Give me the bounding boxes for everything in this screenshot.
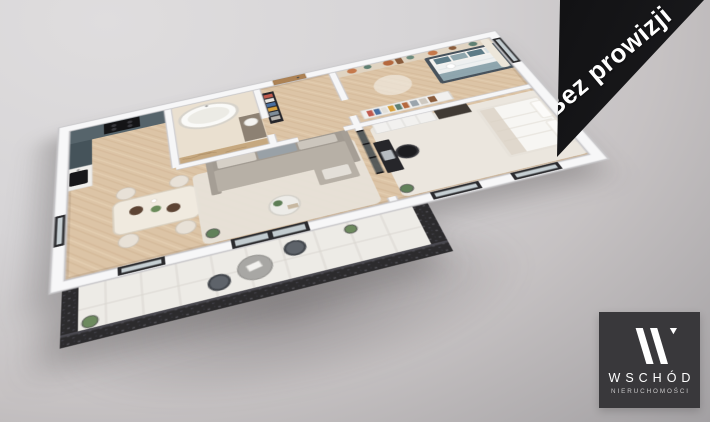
- logo-subtitle: NIERUCHOMOŚCI: [609, 388, 690, 395]
- scene: Bez prowizji WSCHÓD NIERUCHOMOŚCI: [0, 0, 710, 422]
- wschod-monogram-icon: [623, 326, 677, 366]
- ribbon-label: Bez prowizji: [538, 0, 678, 124]
- logo-name: WSCHÓD: [604, 371, 696, 385]
- agency-logo: WSCHÓD NIERUCHOMOŚCI: [599, 312, 700, 408]
